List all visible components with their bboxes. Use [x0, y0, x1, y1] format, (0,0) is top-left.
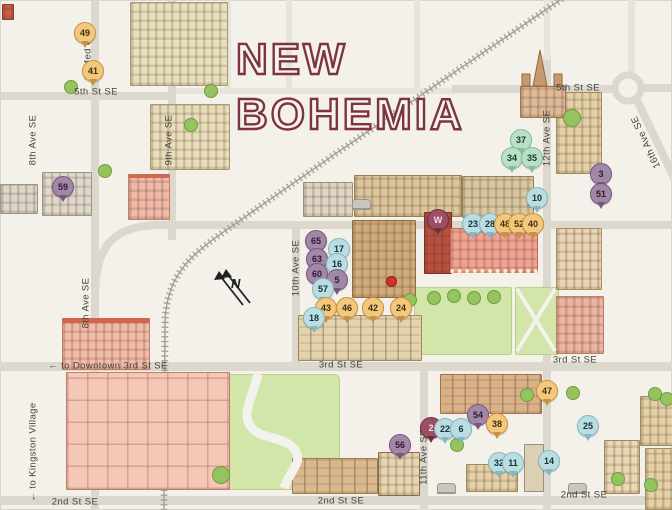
- map-pin-11: 11: [502, 452, 524, 474]
- building: [556, 228, 602, 290]
- pin-number: 59: [58, 182, 68, 192]
- pin-number: 49: [80, 28, 90, 38]
- map-title-line1: NEW: [236, 32, 465, 87]
- tree-icon: [98, 164, 112, 178]
- tree-icon: [566, 386, 580, 400]
- pin-number: 56: [395, 440, 405, 450]
- pin-number: 14: [544, 456, 554, 466]
- tree-icon: [447, 289, 461, 303]
- formal-garden: [515, 287, 559, 355]
- map-pin-56: 56: [389, 434, 411, 456]
- map-title: NEW BOHEMIA: [236, 32, 465, 142]
- building: [556, 296, 604, 354]
- building: [354, 175, 462, 217]
- tree-icon: [487, 290, 501, 304]
- tree-icon: [563, 109, 581, 127]
- pin-number: 6: [458, 424, 463, 434]
- pin-number: W: [434, 215, 443, 225]
- pin-number: 65: [311, 236, 321, 246]
- map-pin-42: 42: [362, 297, 384, 319]
- pin-number: 38: [492, 419, 502, 429]
- pin-number: 22: [440, 424, 450, 434]
- pin-number: 41: [88, 66, 98, 76]
- pin-number: 57: [318, 284, 328, 294]
- compass-arrowhead-icon: [214, 271, 225, 280]
- roundabout: [615, 75, 641, 101]
- map-pin-W: W: [427, 209, 449, 231]
- tree-icon: [204, 84, 218, 98]
- street-label: 16th Ave SE: [629, 114, 663, 170]
- pin-number: 25: [583, 421, 593, 431]
- map-pin-49: 49: [74, 22, 96, 44]
- map-pin-3: 3: [590, 163, 612, 185]
- street-label: 3rd St SE: [553, 355, 597, 366]
- map-pin-18: 18: [303, 307, 325, 329]
- street-label: ← to Kingston Village: [28, 402, 39, 501]
- pin-number: 51: [596, 189, 606, 199]
- red-dot-marker: [386, 276, 397, 287]
- tree-icon: [212, 466, 230, 484]
- map-pin-25: 25: [577, 415, 599, 437]
- street-label: 5th St SE: [556, 83, 600, 94]
- tree-icon: [644, 478, 658, 492]
- pin-number: 5: [334, 275, 339, 285]
- street-label: 2nd St SE: [318, 496, 364, 507]
- map-pin-59: 59: [52, 176, 74, 198]
- pin-number: 16: [332, 259, 342, 269]
- pin-number: 3: [598, 169, 603, 179]
- building: [150, 104, 230, 170]
- pin-number: 42: [368, 303, 378, 313]
- pin-number: 54: [473, 410, 483, 420]
- pin-number: 10: [532, 193, 542, 203]
- tree-icon: [611, 472, 625, 486]
- map-pin-34: 34: [501, 147, 523, 169]
- building: [303, 182, 353, 217]
- map-pin-40: 40: [522, 213, 544, 235]
- map-pin-24: 24: [390, 297, 412, 319]
- street-label: 3rd St SE: [319, 360, 363, 371]
- map-pin-46: 46: [336, 297, 358, 319]
- pin-number: 18: [309, 313, 319, 323]
- street-label: 12th Ave SE: [542, 110, 553, 167]
- lumberyard-complex: [66, 372, 230, 490]
- map-pin-10: 10: [526, 187, 548, 209]
- pin-number: 2: [428, 423, 433, 433]
- street-label: 10th Ave SE: [291, 240, 302, 297]
- pin-number: 24: [396, 303, 406, 313]
- tree-icon: [184, 118, 198, 132]
- map-pin-38: 38: [486, 413, 508, 435]
- pin-number: 23: [468, 219, 478, 229]
- map-pin-51: 51: [590, 183, 612, 205]
- map-pin-47: 47: [536, 380, 558, 402]
- map-title-line2: BOHEMIA: [236, 87, 465, 142]
- pin-number: 37: [516, 135, 526, 145]
- pin-number: 34: [507, 153, 517, 163]
- compass-north-label: N: [231, 276, 240, 291]
- new-bohemia-map: NEW BOHEMIA N to Med Q →5th St SE8th Ave…: [0, 0, 672, 510]
- map-pin-41: 41: [82, 60, 104, 82]
- street-label: 9th Ave SE: [164, 115, 175, 166]
- street-grid-line: [544, 0, 550, 60]
- street-grid-line: [628, 0, 635, 72]
- building: [462, 176, 534, 218]
- rowhouses: [292, 458, 378, 494]
- pin-number: 47: [542, 386, 552, 396]
- car-icon: [352, 199, 371, 210]
- map-pin-6: 6: [450, 418, 472, 440]
- street-label: 8th Ave SE: [81, 278, 92, 329]
- pin-number: 40: [528, 219, 538, 229]
- map-pin-35: 35: [521, 147, 543, 169]
- street-label: 8th Ave SE: [28, 115, 39, 166]
- building: [2, 4, 14, 20]
- building: [130, 2, 228, 86]
- street-label: 2nd St SE: [52, 497, 98, 508]
- curved-road: [95, 225, 155, 292]
- tree-icon: [520, 388, 534, 402]
- street-label: ← to Downtown 3rd St SE: [48, 361, 168, 372]
- cherry-building: [352, 220, 416, 298]
- pin-number: 11: [508, 458, 518, 468]
- building: [128, 174, 170, 220]
- tree-icon: [427, 291, 441, 305]
- tree-icon: [660, 392, 672, 406]
- pin-number: 35: [527, 153, 537, 163]
- pin-number: 46: [342, 303, 352, 313]
- tree-icon: [467, 291, 481, 305]
- market-building: [450, 228, 538, 273]
- building: [604, 440, 640, 494]
- building: [0, 184, 38, 214]
- car-icon: [437, 483, 456, 494]
- map-pin-14: 14: [538, 450, 560, 472]
- street-label: 2nd St SE: [561, 490, 607, 501]
